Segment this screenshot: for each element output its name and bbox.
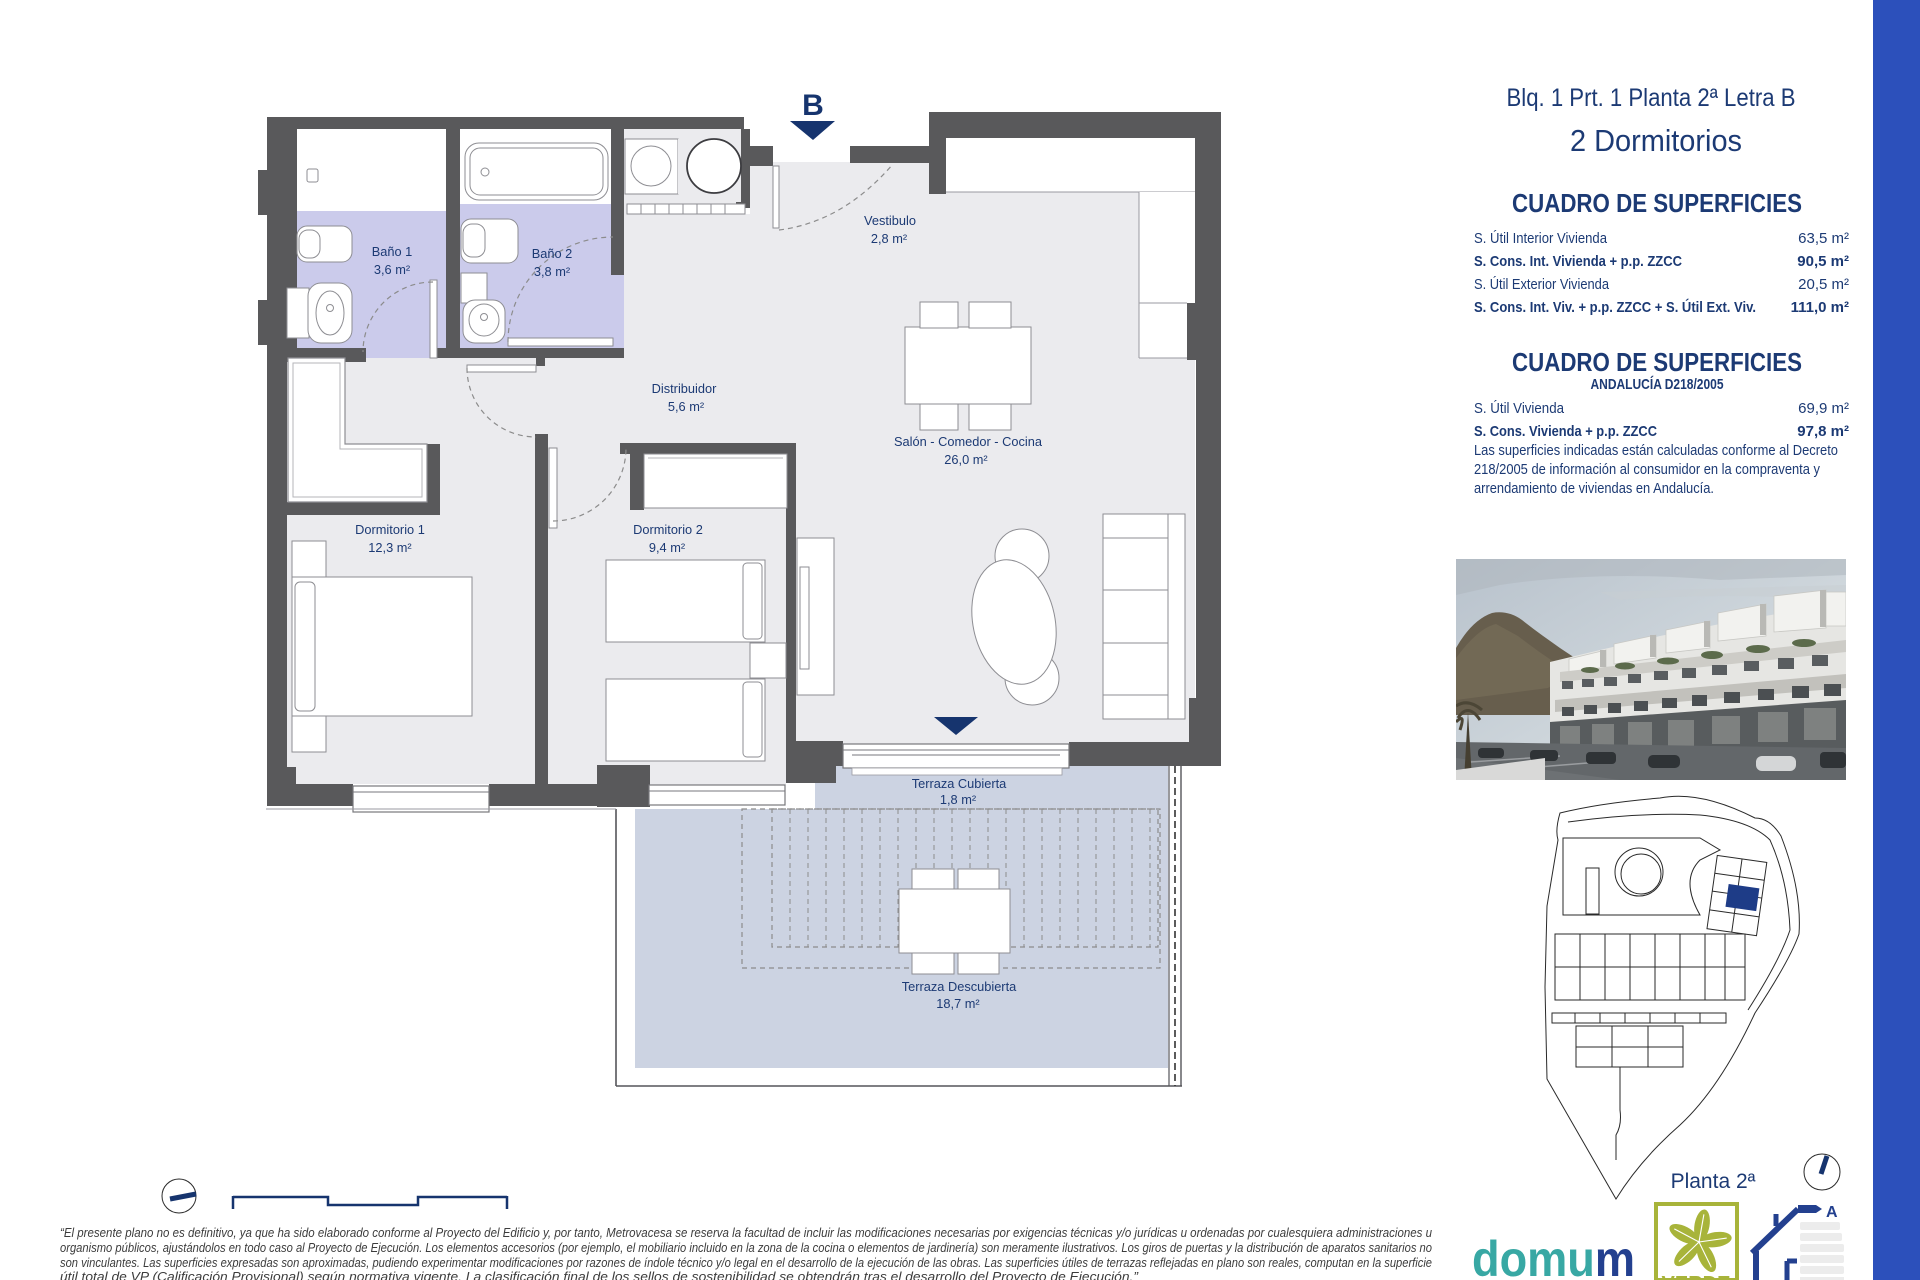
svg-text:Blq. 1 Prt. 1 Planta 2ª Letra: Blq. 1 Prt. 1 Planta 2ª Letra B <box>1507 84 1796 112</box>
svg-text:97,8 m²: 97,8 m² <box>1797 423 1849 440</box>
svg-text:S. Cons. Int. Vivienda + p.p.: S. Cons. Int. Vivienda + p.p. ZZCC <box>1474 253 1682 270</box>
svg-text:218/2005 de información al con: 218/2005 de información al consumidor en… <box>1474 461 1820 478</box>
svg-text:69,9 m²: 69,9 m² <box>1798 400 1849 417</box>
svg-text:111,0 m²: 111,0 m² <box>1791 299 1849 316</box>
svg-text:Dormitorio 2: Dormitorio 2 <box>633 522 703 537</box>
svg-text:3,6 m²: 3,6 m² <box>374 262 411 277</box>
svg-text:CUADRO DE SUPERFICIES: CUADRO DE SUPERFICIES <box>1512 188 1802 218</box>
svg-text:63,5 m²: 63,5 m² <box>1798 230 1849 247</box>
svg-text:5,6 m²: 5,6 m² <box>668 399 705 414</box>
svg-text:S. Útil Interior Vivienda: S. Útil Interior Vivienda <box>1474 230 1608 247</box>
svg-text:Vestibulo: Vestibulo <box>864 213 916 228</box>
svg-text:1,8 m²: 1,8 m² <box>940 792 977 807</box>
svg-text:12,3 m²: 12,3 m² <box>368 540 412 555</box>
svg-text:Dormitorio 1: Dormitorio 1 <box>355 522 425 537</box>
svg-text:CUADRO DE SUPERFICIES: CUADRO DE SUPERFICIES <box>1512 347 1802 377</box>
svg-text:organismo públicos, ajustándol: organismo públicos, ajustándolos en todo… <box>60 1240 1432 1255</box>
svg-text:Terraza Cubierta: Terraza Cubierta <box>912 776 1007 791</box>
svg-text:Salón - Comedor - Cocina: Salón - Comedor - Cocina <box>894 434 1043 449</box>
svg-text:S. Cons. Vivienda + p.p. ZZCC: S. Cons. Vivienda + p.p. ZZCC <box>1474 423 1657 440</box>
svg-text:domum: domum <box>1472 1231 1635 1280</box>
svg-text:Baño 1: Baño 1 <box>372 244 413 259</box>
svg-text:26,0 m²: 26,0 m² <box>944 452 988 467</box>
svg-text:20,5 m²: 20,5 m² <box>1798 276 1849 293</box>
svg-text:útil total de VP (Calificación: útil total de VP (Calificación Provision… <box>60 1269 1139 1280</box>
svg-text:S. Cons. Int. Viv. + p.p. ZZCC: S. Cons. Int. Viv. + p.p. ZZCC + S. Útil… <box>1474 298 1756 316</box>
svg-text:S. Útil Vivienda: S. Útil Vivienda <box>1474 400 1565 417</box>
svg-text:90,5 m²: 90,5 m² <box>1797 253 1849 270</box>
svg-text:Las superficies indicadas está: Las superficies indicadas están calculad… <box>1474 442 1838 459</box>
svg-text:Planta 2ª: Planta 2ª <box>1671 1170 1756 1193</box>
svg-text:Baño 2: Baño 2 <box>532 246 573 261</box>
svg-text:18,7 m²: 18,7 m² <box>936 996 980 1011</box>
svg-text:S. Útil Exterior Vivienda: S. Útil Exterior Vivienda <box>1474 276 1610 293</box>
svg-text:“El presente plano no es defin: “El presente plano no es definitivo, ya … <box>60 1225 1432 1240</box>
svg-text:9,4 m²: 9,4 m² <box>649 540 686 555</box>
svg-text:son vinculantes. Las superfici: son vinculantes. Las superficies expresa… <box>60 1255 1432 1270</box>
svg-text:VERDE: VERDE <box>1662 1273 1731 1280</box>
svg-text:2,8 m²: 2,8 m² <box>871 231 908 246</box>
svg-text:Terraza Descubierta: Terraza Descubierta <box>902 979 1017 994</box>
svg-text:2 Dormitorios: 2 Dormitorios <box>1570 123 1742 158</box>
svg-text:Distribuidor: Distribuidor <box>652 381 717 396</box>
svg-text:arrendamiento de viviendas en: arrendamiento de viviendas en Andalucía. <box>1474 480 1714 497</box>
svg-text:3,8 m²: 3,8 m² <box>534 264 571 279</box>
svg-text:ANDALUCÍA D218/2005: ANDALUCÍA D218/2005 <box>1591 376 1724 393</box>
svg-text:A: A <box>1826 1204 1838 1221</box>
svg-text:B: B <box>802 89 824 122</box>
